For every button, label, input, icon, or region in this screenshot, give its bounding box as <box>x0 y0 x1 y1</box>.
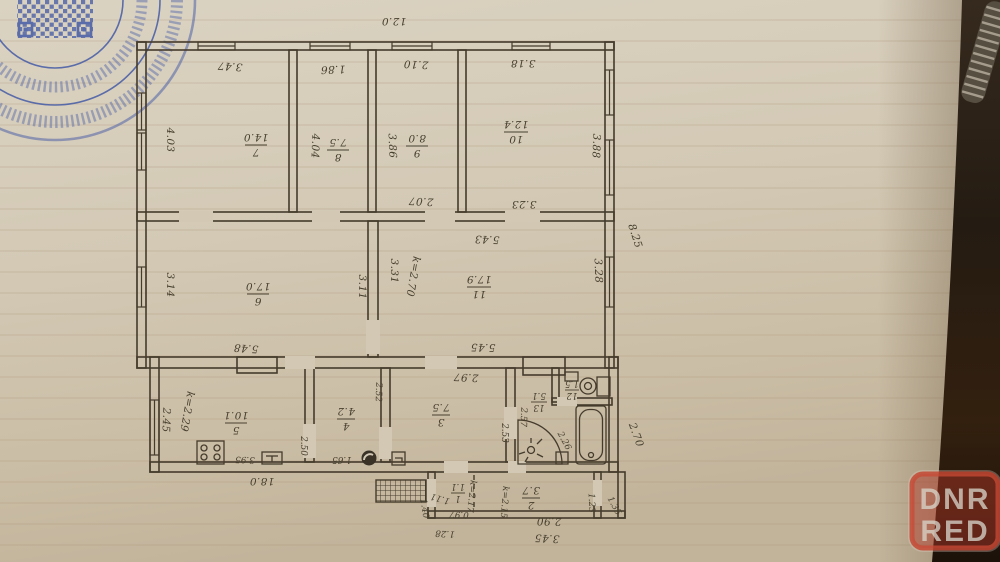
dim-r11-top: 5.43 <box>474 233 499 246</box>
svg-text:4.2: 4.2 <box>337 405 356 417</box>
dim-r3-right: 2.57 <box>518 406 529 427</box>
svg-text:7.5: 7.5 <box>432 401 450 413</box>
svg-text:10: 10 <box>509 133 523 145</box>
boiler-icon <box>362 451 377 466</box>
svg-text:17.0: 17.0 <box>246 280 271 292</box>
dim-r10-bottom: 3.23 <box>512 198 537 210</box>
dim-porch-left-width: 1.28 <box>435 527 455 538</box>
svg-text:12.4: 12.4 <box>504 118 529 130</box>
svg-text:5.1: 5.1 <box>532 390 546 400</box>
svg-text:13: 13 <box>533 402 545 412</box>
dim-r8-top: 1.86 <box>320 63 345 76</box>
dim-porch-bottom: 3.45 <box>534 531 560 544</box>
svg-text:10.1: 10.1 <box>224 409 249 421</box>
svg-text:8: 8 <box>334 151 341 163</box>
svg-text:9: 9 <box>413 147 420 159</box>
dim-porch-right-inner: 1.23 <box>586 493 597 513</box>
qr-code-icon <box>17 0 93 38</box>
dim-r5-right: 2.50 <box>298 435 308 456</box>
dim-r5-left: 2.45 <box>160 406 173 432</box>
dim-r4-right: 2.52 <box>373 381 384 402</box>
floor-plan-photo: 7 14.0 8 7.5 9 8.0 10 12.4 6 <box>0 0 1000 562</box>
dim-r10-right: 3.88 <box>590 133 603 158</box>
dim-r6-right: 3.11 <box>356 275 368 300</box>
dim-r4-bottom: 1.65 <box>332 454 352 464</box>
svg-text:12: 12 <box>566 390 578 400</box>
dim-r3-top: 2.97 <box>453 370 480 383</box>
dim-r9-top: 2.10 <box>403 57 430 70</box>
svg-text:1.1: 1.1 <box>451 481 465 491</box>
dim-r8-left: 4.04 <box>309 132 322 158</box>
dim-r9-left: 3.86 <box>386 133 399 158</box>
svg-text:3.7: 3.7 <box>522 484 540 496</box>
floor-plan-canvas: 7 14.0 8 7.5 9 8.0 10 12.4 6 <box>0 0 1000 562</box>
watermark-line1: DNR <box>920 483 991 516</box>
dim-r9-bottom: 2.07 <box>408 194 435 207</box>
svg-text:17.9: 17.9 <box>467 273 492 285</box>
svg-text:6: 6 <box>254 295 261 307</box>
dim-r6-bottom: 5.48 <box>233 341 259 355</box>
svg-text:1.5: 1.5 <box>565 378 579 388</box>
dim-r6-left: 3.14 <box>164 273 176 298</box>
svg-text:11: 11 <box>472 288 486 300</box>
dim-overall-top: 12.0 <box>382 15 407 27</box>
svg-text:2: 2 <box>527 499 535 511</box>
svg-text:4: 4 <box>342 420 350 432</box>
dim-overall-bottom: 18.0 <box>250 475 275 487</box>
dim-r5-bottom: 3.95 <box>235 454 255 465</box>
dim-r2-bottom: 2.90 <box>536 515 562 527</box>
dim-r7-top: 3.47 <box>217 59 243 73</box>
watermark-line2: RED <box>920 515 989 548</box>
dim-r11-bottom: 5.45 <box>470 341 495 353</box>
dim-r11-left: 3.31 <box>388 259 400 284</box>
svg-text:7: 7 <box>252 146 259 158</box>
svg-text:7.5: 7.5 <box>329 136 347 148</box>
dim-r3-left: 2.53 <box>499 422 509 443</box>
svg-text:3: 3 <box>437 416 444 428</box>
svg-text:1: 1 <box>455 493 461 503</box>
svg-text:14.0: 14.0 <box>244 131 269 143</box>
svg-text:8.0: 8.0 <box>408 132 426 144</box>
dim-r7-left: 4.03 <box>164 127 176 153</box>
dim-r10-top: 3.18 <box>511 57 536 69</box>
dim-r11-right: 3.28 <box>592 258 605 283</box>
dnr-red-watermark: DNR RED <box>909 471 1000 551</box>
svg-text:5: 5 <box>232 424 239 436</box>
